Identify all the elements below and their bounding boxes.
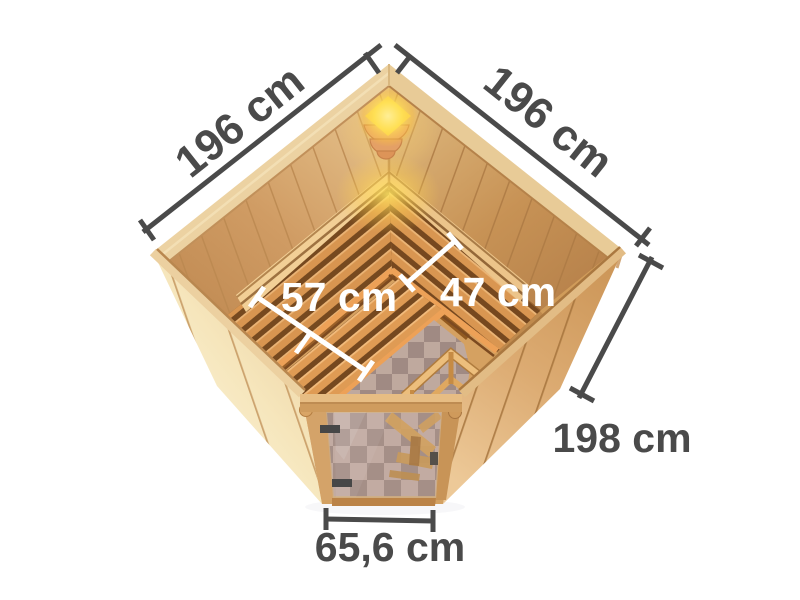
- svg-text:47 cm: 47 cm: [440, 269, 556, 315]
- svg-text:57 cm: 57 cm: [281, 274, 397, 320]
- svg-text:198 cm: 198 cm: [552, 415, 691, 461]
- svg-text:65,6 cm: 65,6 cm: [315, 524, 465, 570]
